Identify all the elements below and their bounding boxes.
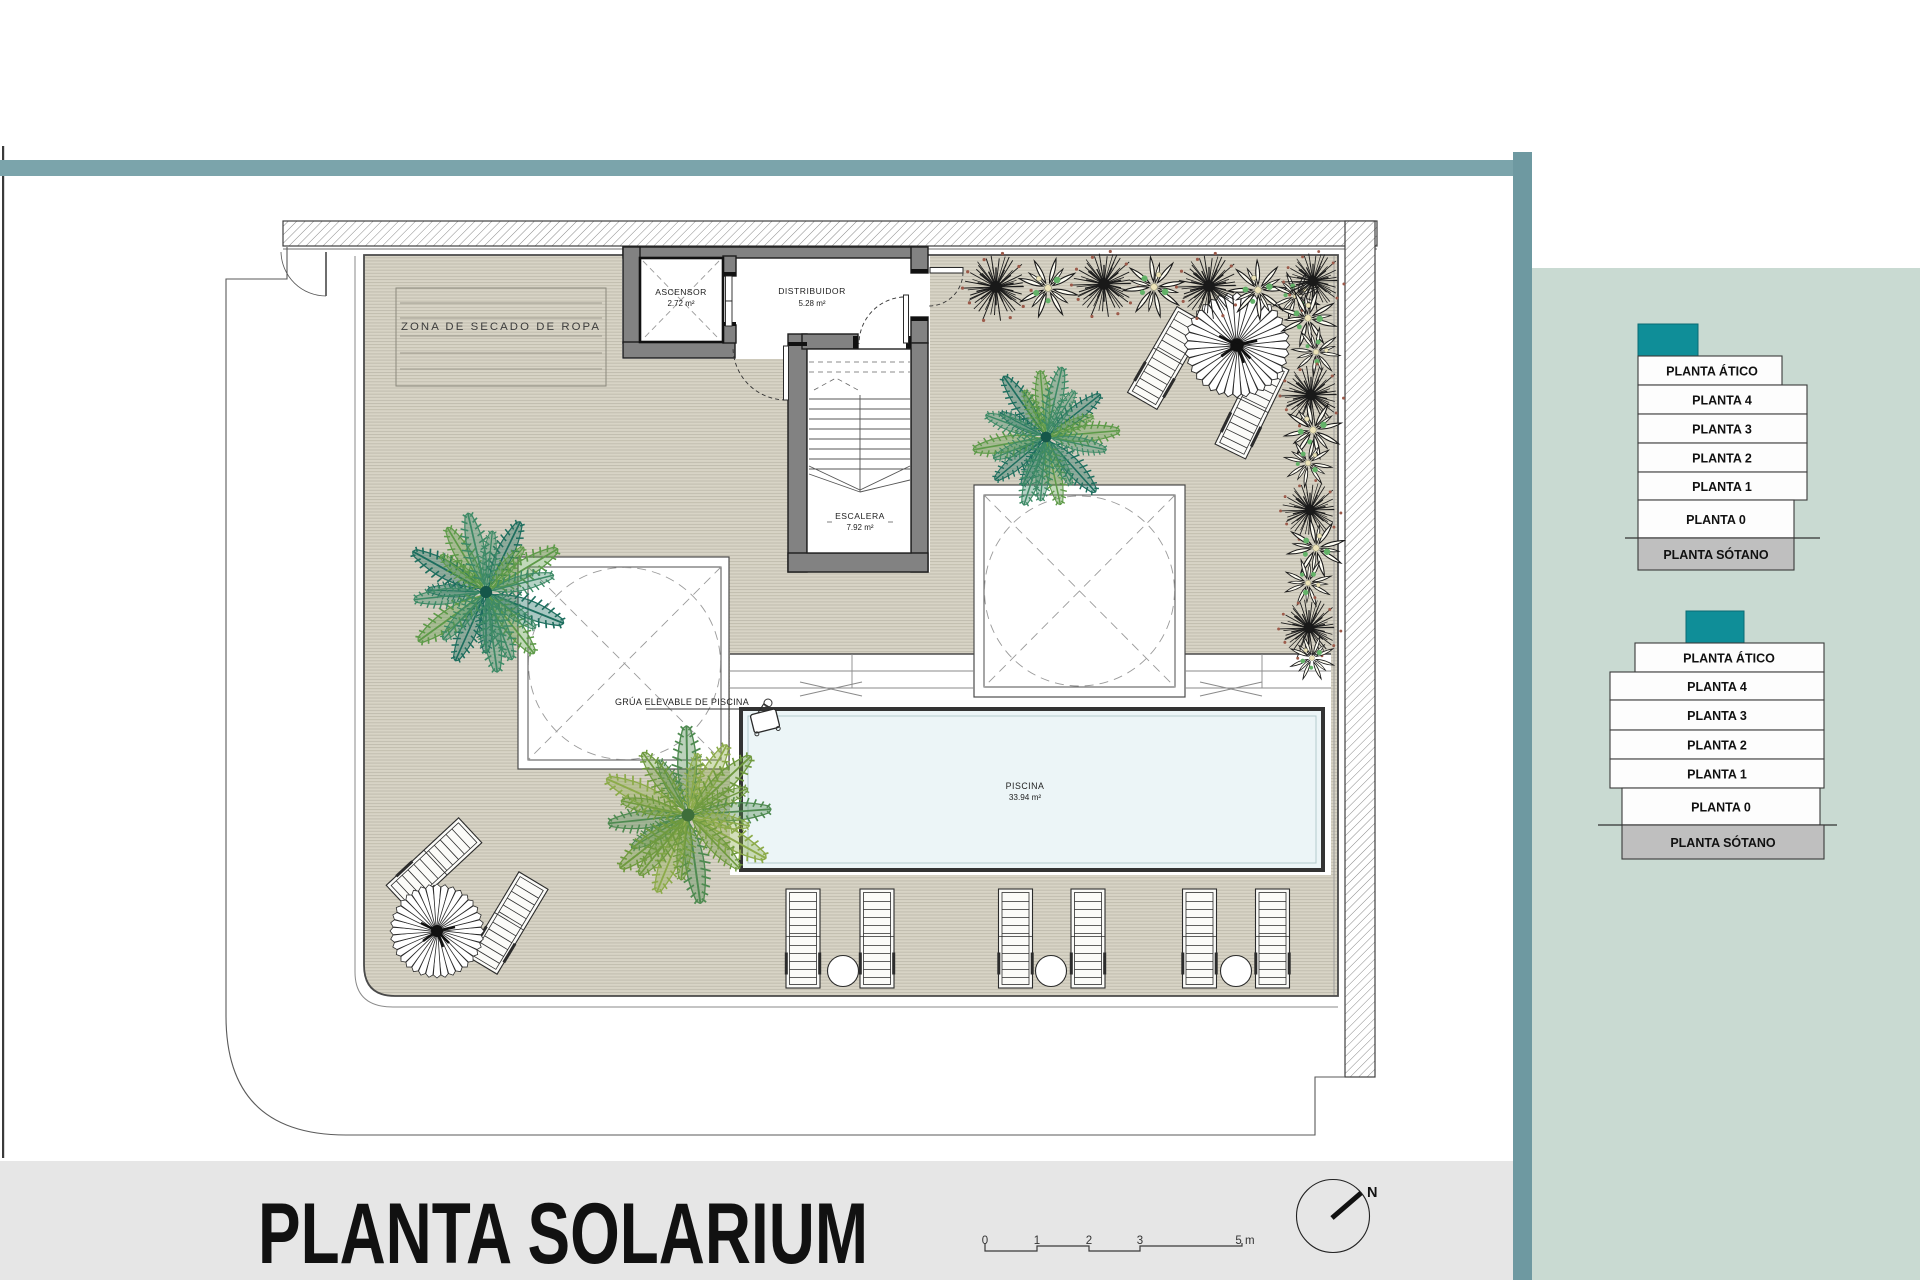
svg-text:PLANTA ÁTICO: PLANTA ÁTICO xyxy=(1666,364,1758,379)
svg-text:N: N xyxy=(1367,1185,1377,1201)
svg-text:ASCENSOR: ASCENSOR xyxy=(655,287,706,297)
svg-text:PISCINA: PISCINA xyxy=(1006,781,1045,791)
svg-text:ESCALERA: ESCALERA xyxy=(835,511,885,521)
svg-text:5 m: 5 m xyxy=(1235,1235,1254,1247)
svg-text:5.28 m²: 5.28 m² xyxy=(798,299,825,308)
svg-text:2.72 m²: 2.72 m² xyxy=(667,299,694,308)
svg-text:PLANTA 2: PLANTA 2 xyxy=(1687,739,1747,753)
svg-text:PLANTA 2: PLANTA 2 xyxy=(1692,452,1752,466)
svg-text:PLANTA SÓTANO: PLANTA SÓTANO xyxy=(1670,835,1776,850)
svg-text:PLANTA ÁTICO: PLANTA ÁTICO xyxy=(1683,651,1775,666)
svg-text:DISTRIBUIDOR: DISTRIBUIDOR xyxy=(778,286,846,296)
svg-text:7.92 m²: 7.92 m² xyxy=(846,523,873,532)
svg-text:1: 1 xyxy=(1034,1235,1040,1247)
svg-text:PLANTA SOLARIUM: PLANTA SOLARIUM xyxy=(258,1186,868,1280)
svg-text:PLANTA 1: PLANTA 1 xyxy=(1687,768,1747,782)
svg-text:33.94 m²: 33.94 m² xyxy=(1009,793,1042,802)
svg-text:ZONA DE SECADO DE ROPA: ZONA DE SECADO DE ROPA xyxy=(401,321,601,333)
svg-text:PLANTA 0: PLANTA 0 xyxy=(1686,513,1746,527)
svg-text:PLANTA 1: PLANTA 1 xyxy=(1692,480,1752,494)
svg-text:0: 0 xyxy=(982,1235,988,1247)
svg-text:2: 2 xyxy=(1086,1235,1092,1247)
svg-text:PLANTA 4: PLANTA 4 xyxy=(1687,680,1747,694)
svg-text:3: 3 xyxy=(1137,1235,1143,1247)
svg-text:PLANTA SÓTANO: PLANTA SÓTANO xyxy=(1663,547,1769,562)
svg-text:PLANTA 0: PLANTA 0 xyxy=(1691,801,1751,815)
svg-text:PLANTA 3: PLANTA 3 xyxy=(1692,423,1752,437)
svg-text:GRÚA ELEVABLE DE PISCINA: GRÚA ELEVABLE DE PISCINA xyxy=(615,697,749,707)
svg-text:PLANTA 4: PLANTA 4 xyxy=(1692,394,1752,408)
svg-text:PLANTA 3: PLANTA 3 xyxy=(1687,709,1747,723)
